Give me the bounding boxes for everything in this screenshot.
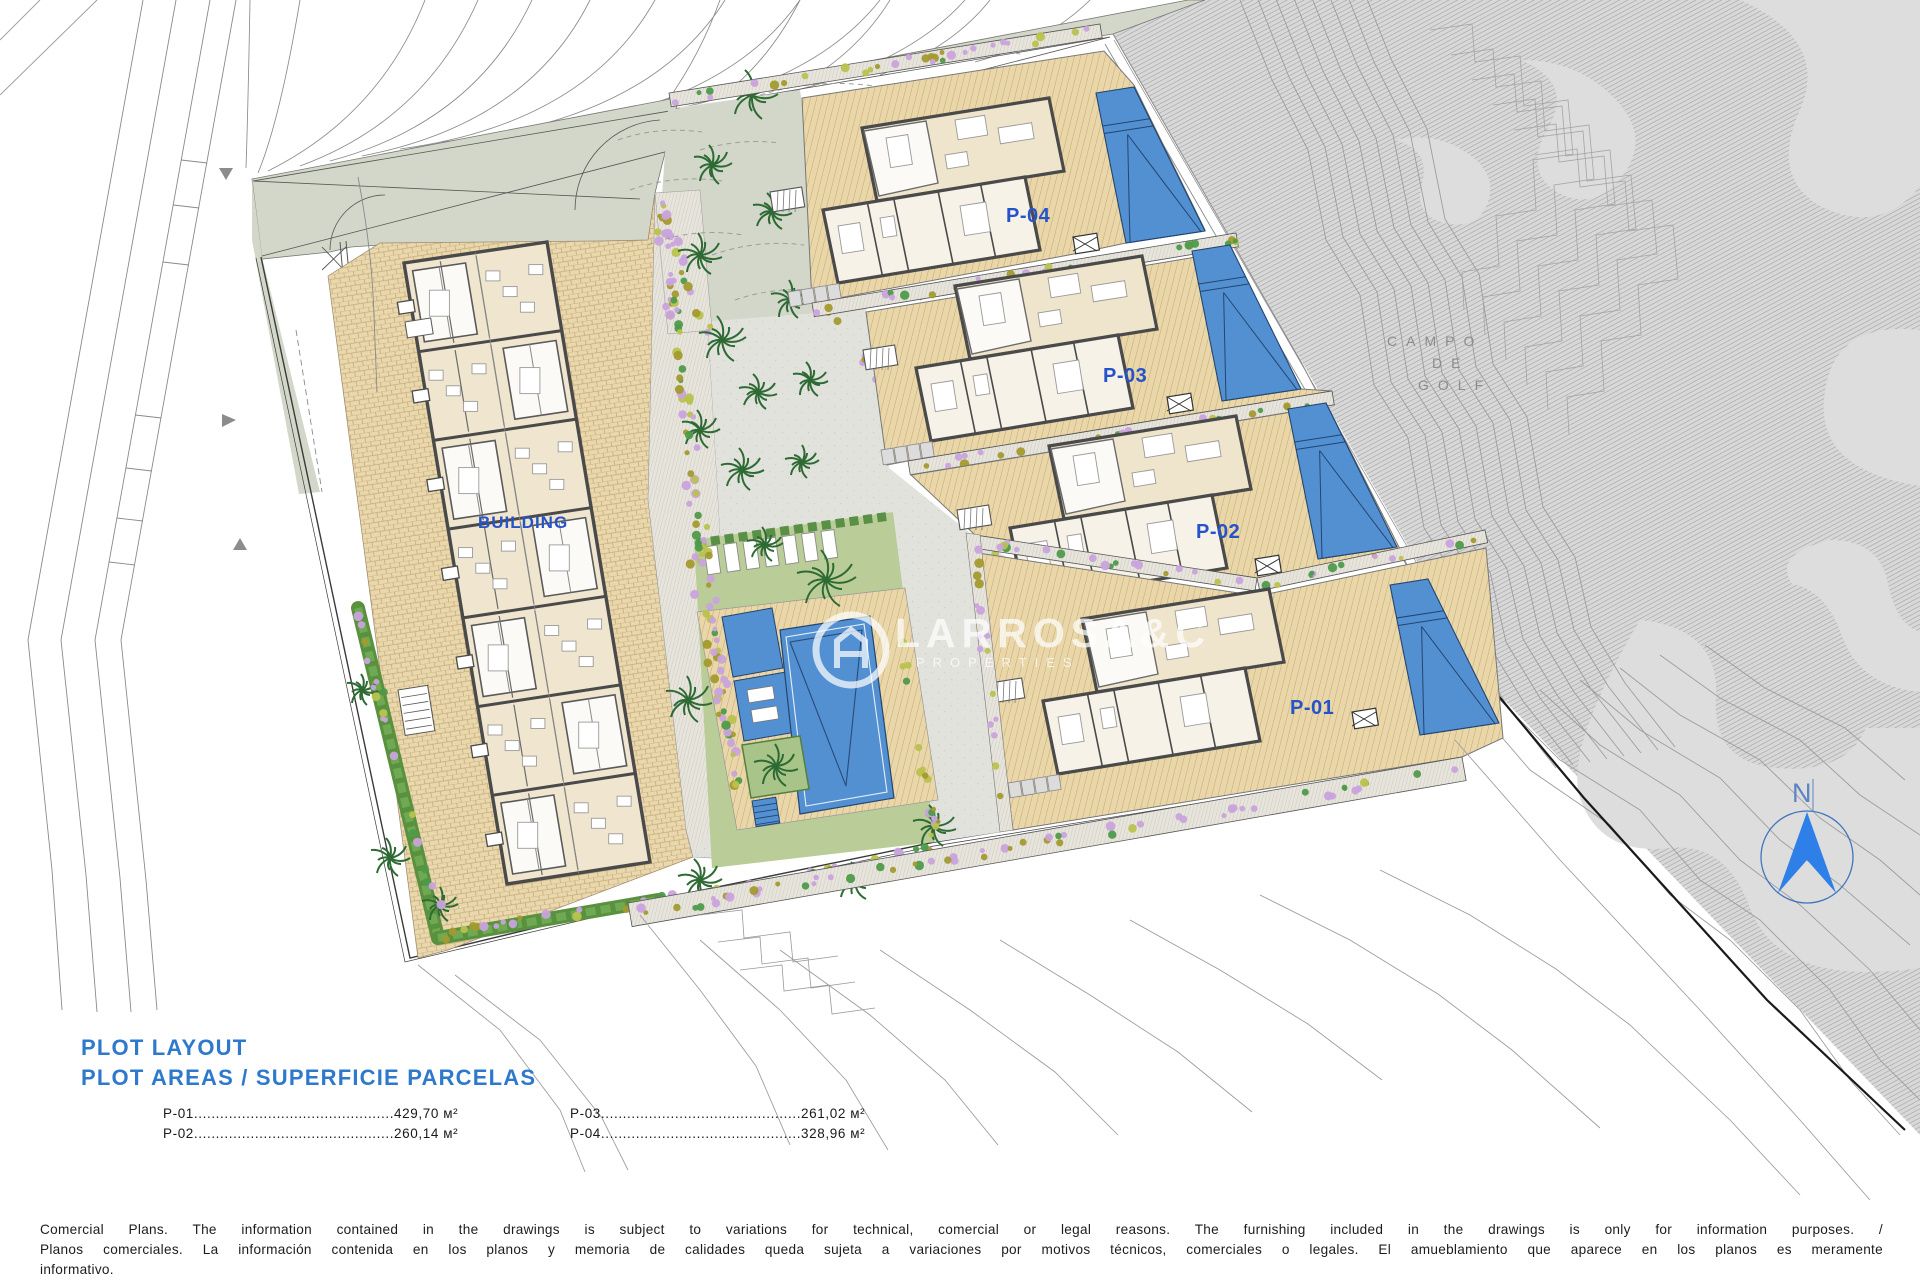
svg-text:N: N [1792,778,1812,808]
svg-text:DE: DE [1432,355,1469,371]
svg-text:PROPERTIES: PROPERTIES [916,655,1080,670]
svg-text:CAMPO: CAMPO [1387,333,1483,349]
svg-text:P-03: P-03 [1103,365,1147,387]
svg-text:BUILDING: BUILDING [478,513,568,532]
svg-text:P-01: P-01 [1290,697,1334,719]
svg-text:LARROSA&C: LARROSA&C [895,610,1211,656]
svg-text:P-02: P-02 [1196,521,1240,543]
svg-text:GOLF: GOLF [1418,377,1492,393]
svg-text:P-04: P-04 [1006,205,1051,227]
